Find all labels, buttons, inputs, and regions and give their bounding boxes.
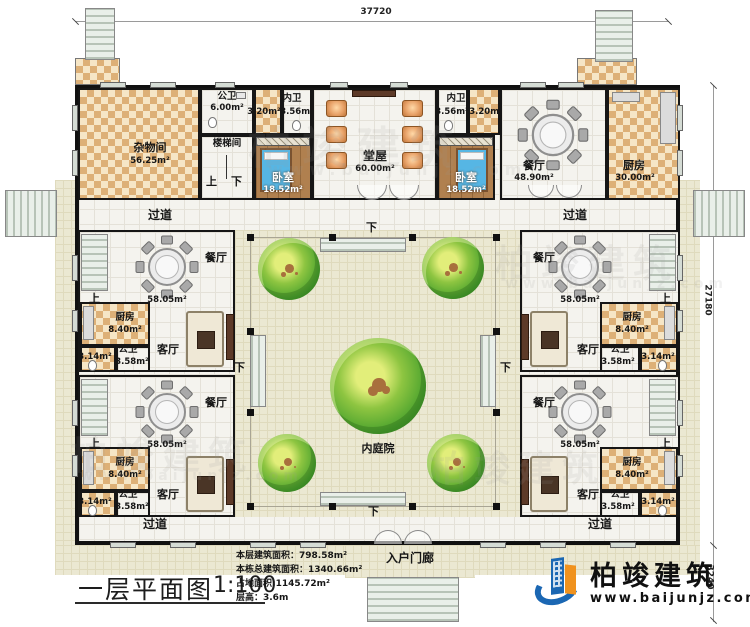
column — [247, 409, 254, 416]
wing-bath-label: 公卫 — [600, 490, 640, 500]
column — [247, 328, 254, 335]
kitchen-counter-icon — [664, 306, 675, 340]
brand-website: www.baijunjz.com — [590, 591, 750, 606]
window — [390, 82, 408, 88]
wing-dining-label: 餐厅 — [524, 397, 564, 409]
window — [110, 542, 136, 548]
wing-bath-area-large: 3.58m² — [598, 357, 638, 367]
column — [493, 328, 500, 335]
wing-stairs — [81, 234, 108, 291]
window — [480, 542, 506, 548]
stairs-down-label: 下 — [231, 176, 242, 188]
window — [540, 542, 566, 548]
chair-icon — [603, 261, 612, 273]
exterior-steps-east — [693, 190, 745, 237]
window — [330, 82, 348, 88]
wing-living-label: 客厅 — [570, 344, 606, 356]
tv-cabinet-icon — [521, 314, 529, 360]
wing-stairs — [81, 379, 108, 436]
wing-bath-area-small: 3.14m² — [640, 352, 676, 362]
room-kitchen-main-area: 30.00m² — [606, 173, 664, 183]
window — [72, 455, 78, 477]
brand-logo-icon — [534, 556, 584, 610]
porch-north-west — [75, 58, 120, 85]
stairs-up-label: 上 — [206, 176, 217, 188]
dimension-line-top — [75, 21, 669, 22]
step-down-label: 下 — [366, 222, 377, 234]
toilet-icon — [88, 360, 97, 371]
courtyard-label: 内庭院 — [348, 443, 408, 455]
chair-icon — [603, 406, 612, 418]
window — [677, 455, 683, 477]
tree-northeast — [422, 237, 484, 299]
console-table-icon — [352, 90, 396, 97]
chair-icon — [566, 105, 583, 122]
kitchen-counter-icon — [83, 451, 94, 485]
window — [677, 255, 683, 281]
room-storage-area: 56.25m² — [110, 156, 190, 166]
wing-dining-area: 58.05m² — [553, 295, 607, 305]
chair-icon — [574, 381, 586, 390]
window — [150, 82, 176, 88]
room-bedroom-label: 卧室 — [254, 172, 312, 184]
stat-floor-area: 本层建筑面积：798.58m² — [236, 549, 362, 563]
wing-living-label: 客厅 — [150, 344, 186, 356]
stair-direction-line — [226, 155, 227, 179]
window — [558, 82, 584, 88]
window — [72, 255, 78, 281]
exterior-steps-north-west — [85, 8, 115, 60]
dining-table-icon — [130, 375, 204, 449]
kitchen-counter-icon — [660, 92, 676, 144]
chair-icon — [578, 128, 588, 141]
window — [72, 310, 78, 332]
tree-southwest — [258, 434, 316, 492]
column — [247, 503, 254, 510]
exterior-steps-north-east — [595, 10, 633, 62]
room-bedroom-area: 18.52m² — [254, 185, 312, 195]
wing-dining-area: 58.05m² — [553, 440, 607, 450]
toilet-icon — [658, 505, 667, 516]
corridor-label: 过道 — [125, 518, 185, 530]
window — [100, 82, 126, 88]
column — [409, 234, 416, 241]
tree-northwest — [258, 238, 320, 300]
wing-bath-label: 公卫 — [600, 345, 640, 355]
stats-block: 本层建筑面积：798.58m² 本栋总建筑面积：1340.66m² 占地面积:1… — [236, 549, 362, 605]
step-down-label: 下 — [500, 362, 511, 374]
chair-icon — [136, 261, 145, 273]
window — [72, 105, 78, 131]
sofa-icon — [186, 311, 224, 367]
toilet-icon — [292, 120, 301, 131]
wing-bath-label: 公卫 — [108, 490, 148, 500]
tree-southeast — [427, 434, 485, 492]
column — [493, 503, 500, 510]
wing-kitchen-area: 8.40m² — [607, 470, 657, 480]
toilet-icon — [208, 117, 217, 128]
exterior-steps-west — [5, 190, 57, 237]
window — [72, 400, 78, 426]
porch-north-east — [577, 58, 637, 85]
dimension-right-height: 27180 — [703, 284, 713, 315]
chair-icon — [161, 236, 173, 245]
wing-bath-area-large: 3.58m² — [598, 502, 638, 512]
wing-living-label: 客厅 — [570, 489, 606, 501]
tv-cabinet-icon — [521, 459, 529, 505]
dining-table-icon — [543, 230, 617, 304]
room-dining-main-area: 48.90m² — [506, 173, 562, 183]
room-public-bath-area: 6.00m² — [204, 103, 250, 113]
kitchen-counter-icon — [83, 306, 94, 340]
room-stair-hall-label: 楼梯间 — [202, 139, 252, 149]
chair-icon — [592, 279, 607, 294]
wing-kitchen-label: 厨房 — [100, 458, 150, 468]
window — [677, 400, 683, 426]
step-down-label: 下 — [368, 506, 379, 518]
window — [250, 542, 276, 548]
tv-cabinet-icon — [226, 314, 234, 360]
wing-stairs — [649, 234, 676, 291]
toilet-icon — [88, 505, 97, 516]
chair-icon — [592, 424, 607, 439]
window — [170, 542, 196, 548]
plan-title: 一层平面图 — [78, 570, 213, 606]
window — [520, 82, 546, 88]
entry-steps — [367, 577, 459, 622]
column — [493, 234, 500, 241]
room-main-hall-label: 堂屋 — [340, 150, 410, 162]
floor-plan-canvas: 37720 27180 3240 下 下 下 下 内庭院 杂物间 56.25m²… — [0, 0, 750, 627]
wing-bath-area-large: 3.58m² — [112, 357, 152, 367]
window — [677, 105, 683, 131]
dining-table-icon — [543, 375, 617, 449]
chair-icon — [136, 406, 145, 418]
toilet-icon — [444, 120, 453, 131]
room-ensuite-label: 内卫 — [272, 94, 312, 104]
sofa-icon — [530, 311, 568, 367]
room-main-hall-area: 60.00m² — [340, 164, 410, 174]
chair-icon — [518, 128, 528, 141]
room-bedroom-area: 18.52m² — [437, 185, 495, 195]
stat-footprint-area: 占地面积:1145.72m² — [236, 577, 362, 591]
room-bedroom-label: 卧室 — [437, 172, 495, 184]
wing-bath-label: 公卫 — [108, 345, 148, 355]
column — [247, 234, 254, 241]
wing-dining-label: 餐厅 — [196, 252, 236, 264]
wing-kitchen-label: 厨房 — [607, 313, 657, 323]
window — [610, 542, 636, 548]
chair-icon — [326, 126, 347, 143]
toilet-icon — [658, 360, 667, 371]
kitchen-counter-icon — [612, 92, 640, 102]
wing-kitchen-area: 8.40m² — [100, 470, 150, 480]
room-kitchen-main-label: 厨房 — [608, 160, 660, 172]
wing-living-label: 客厅 — [150, 489, 186, 501]
dining-table-icon — [130, 230, 204, 304]
wing-bath-area-small: 3.14m² — [640, 497, 676, 507]
window — [677, 310, 683, 332]
brand-name: 柏竣建筑 — [590, 554, 718, 593]
window — [215, 82, 235, 88]
sofa-icon — [530, 456, 568, 512]
terrace-east — [678, 180, 700, 575]
window — [677, 150, 683, 176]
corridor-label: 过道 — [570, 518, 630, 530]
dimension-top-width: 37720 — [346, 7, 406, 17]
room-ensuite-area-small: 3.20m² — [246, 107, 282, 117]
tv-cabinet-icon — [226, 459, 234, 505]
room-ensuite-label: 内卫 — [436, 94, 476, 104]
courtyard-steps-east — [480, 335, 496, 407]
wing-stairs — [649, 379, 676, 436]
room-storage-label: 杂物间 — [110, 142, 190, 154]
chair-icon — [574, 236, 586, 245]
window — [300, 542, 326, 548]
chair-icon — [546, 100, 559, 110]
wardrobe-icon — [256, 137, 310, 146]
chair-icon — [326, 100, 347, 117]
room-ensuite-area-small: 3.20m² — [468, 107, 504, 117]
kitchen-counter-icon — [664, 451, 675, 485]
wing-dining-label: 餐厅 — [524, 252, 564, 264]
wing-kitchen-label: 厨房 — [607, 458, 657, 468]
corridor-label: 过道 — [130, 209, 190, 221]
wing-kitchen-area: 8.40m² — [607, 325, 657, 335]
corridor-label: 过道 — [545, 209, 605, 221]
window — [72, 150, 78, 176]
wing-kitchen-area: 8.40m² — [100, 325, 150, 335]
step-down-label: 下 — [234, 362, 245, 374]
stat-total-area: 本栋总建筑面积：1340.66m² — [236, 563, 362, 577]
stat-storey-height: 层高：3.6m — [236, 591, 362, 605]
column — [329, 234, 336, 241]
room-ensuite-area-large: 3.56m² — [434, 107, 470, 117]
wing-kitchen-label: 厨房 — [100, 313, 150, 323]
chair-icon — [402, 126, 423, 143]
sofa-icon — [186, 456, 224, 512]
column — [409, 503, 416, 510]
room-ensuite-area-large: 3.56m² — [279, 107, 315, 117]
dimension-line-right — [713, 85, 714, 622]
courtyard-steps-west — [250, 335, 266, 407]
wardrobe-icon — [439, 137, 493, 146]
chair-icon — [161, 381, 173, 390]
sink-icon — [236, 92, 246, 99]
wing-dining-label: 餐厅 — [196, 397, 236, 409]
chair-icon — [179, 424, 194, 439]
chair-icon — [179, 279, 194, 294]
wing-bath-area-large: 3.58m² — [112, 502, 152, 512]
chair-icon — [566, 148, 583, 165]
tree-center — [330, 338, 426, 434]
room-dining-main-label: 餐厅 — [508, 160, 560, 172]
entry-porch-label: 入户门廊 — [345, 552, 475, 564]
column — [493, 409, 500, 416]
column — [329, 503, 336, 510]
chair-icon — [402, 100, 423, 117]
terrace-west — [55, 180, 77, 575]
